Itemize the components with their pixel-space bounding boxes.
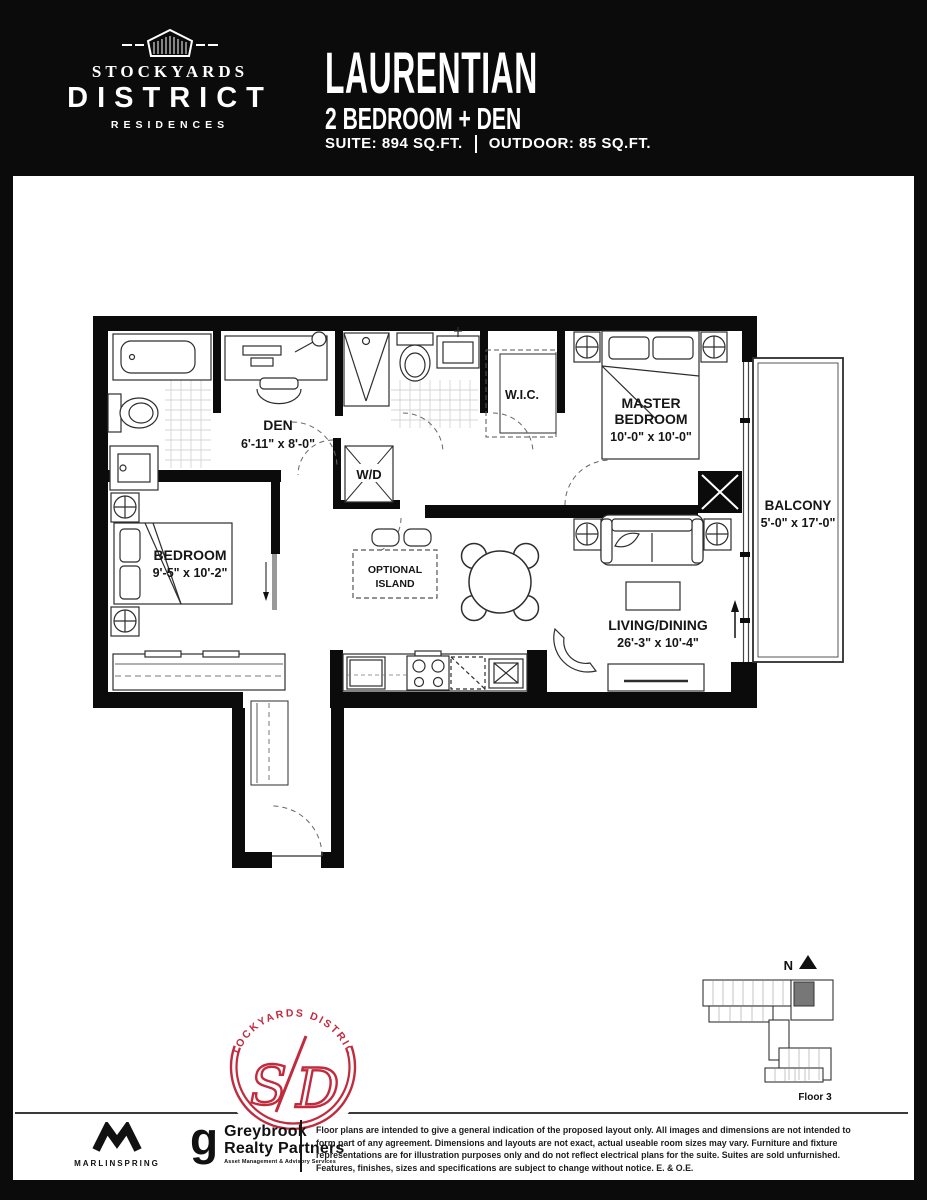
master-bedroom: MASTER BEDROOM 10'-0" x 10'-0"	[574, 331, 727, 459]
column	[698, 471, 742, 513]
den: DEN 6'-11" x 8'-0"	[225, 332, 327, 451]
footer-vertical-divider	[300, 1120, 302, 1172]
range-hood	[415, 651, 441, 656]
marlinspring-icon	[91, 1122, 143, 1152]
balcony-label: BALCONY	[765, 498, 832, 513]
lounge-chair	[554, 629, 596, 672]
burner	[432, 660, 444, 672]
stockyards-crown-icon	[120, 28, 220, 60]
living-dims: 26'-3" x 10'-4"	[617, 636, 699, 650]
burner	[413, 660, 425, 672]
floorplan-drawing: BALCONY 5'-0" x 17'-0" DEN 6'-11" x	[85, 300, 845, 880]
sofa-arm	[601, 519, 612, 563]
laundry-closet: W/D	[345, 446, 393, 502]
balcony: BALCONY 5'-0" x 17'-0"	[753, 358, 843, 662]
north-label: N	[784, 958, 793, 973]
footer-divider-line	[15, 1112, 908, 1114]
master-label-1: MASTER	[621, 395, 680, 411]
disclaimer-line-2: form part of any agreement. Dimensions a…	[316, 1137, 912, 1150]
building-key-plan: N Floor 3	[695, 952, 915, 1112]
tile-floor	[165, 380, 211, 468]
fridge-inner	[350, 660, 382, 686]
coffee-table	[626, 582, 680, 610]
toilet-seat	[129, 403, 153, 423]
brand-stockyards: STOCKYARDS	[70, 62, 270, 82]
pillow	[120, 566, 140, 599]
highlighted-unit	[794, 982, 814, 1006]
floor-label: Floor 3	[798, 1092, 832, 1103]
master-label-2: BEDROOM	[614, 411, 687, 427]
tv-console	[608, 664, 704, 691]
north-arrow-icon	[799, 955, 817, 969]
badge-letter-d: D	[295, 1057, 339, 1120]
bedroom-label: BEDROOM	[153, 547, 226, 563]
area-summary: SUITE: 894 SQ.FT.OUTDOOR: 85 SQ.FT.	[325, 135, 651, 153]
burner	[434, 678, 443, 687]
island-label-2: ISLAND	[375, 578, 415, 590]
pillow	[120, 529, 140, 562]
sink2-basin	[443, 342, 473, 363]
stove	[407, 656, 449, 690]
disclaimer-line-1: Floor plans are intended to give a gener…	[316, 1124, 912, 1137]
bedroom-closet	[113, 654, 285, 690]
badge-letter-s: S	[250, 1054, 287, 1117]
dining-set	[462, 544, 539, 621]
wd-label: W/D	[356, 467, 381, 482]
dining-table	[469, 551, 531, 613]
shower-drain	[363, 338, 370, 345]
desk-chair-seat	[260, 378, 298, 389]
bedroom: BEDROOM 9'-5" x 10'-2"	[111, 493, 285, 690]
island-label-1: OPTIONAL	[368, 564, 423, 576]
keyboard	[251, 358, 273, 366]
marlinspring-name: MARLINSPRING	[58, 1159, 176, 1168]
balcony-door-arrow	[731, 600, 739, 638]
living-label: LIVING/DINING	[608, 617, 708, 633]
disclaimer-text: Floor plans are intended to give a gener…	[316, 1124, 912, 1174]
lamp	[312, 332, 326, 346]
sofa-arm	[692, 519, 703, 563]
wic-label: W.I.C.	[505, 388, 539, 402]
bathroom-2	[344, 327, 479, 428]
outdoor-area: OUTDOOR: 85 SQ.FT.	[489, 135, 651, 152]
pillow	[609, 337, 649, 359]
burner	[415, 678, 424, 687]
closet-tab	[203, 651, 239, 657]
den-label: DEN	[263, 417, 293, 433]
optional-island: OPTIONAL ISLAND	[353, 529, 437, 598]
toilet2-seat	[405, 353, 425, 377]
brand-residences: RESIDENCES	[70, 119, 270, 131]
sofa-back	[612, 519, 692, 531]
tub-drain	[130, 355, 135, 360]
brand-district: DISTRICT	[60, 82, 280, 115]
slide-arrow	[263, 592, 269, 601]
stool	[404, 529, 431, 546]
bathroom-1	[108, 334, 211, 490]
disclaimer-line-3: representations are for illustration pur…	[316, 1149, 912, 1162]
pillow	[653, 337, 693, 359]
sliding-door	[272, 554, 277, 610]
toilet-tank	[108, 394, 121, 432]
disclaimer-line-4: Features, finishes, sizes and specificat…	[316, 1162, 912, 1175]
bedroom-dims: 9'-5" x 10'-2"	[153, 566, 228, 580]
floorplan-sheet: { "header": { "brand_line1": "STOCKYARDS…	[0, 0, 927, 1200]
page-title: LAURENTIAN	[325, 40, 538, 107]
stool	[372, 529, 399, 546]
monitor	[243, 346, 281, 355]
suite-area: SUITE: 894 SQ.FT.	[325, 135, 463, 152]
greybrook-g-icon: g	[190, 1120, 218, 1158]
den-dims: 6'-11" x 8'-0"	[241, 437, 315, 451]
foyer-closet	[251, 701, 288, 785]
marlinspring-logo: MARLINSPRING	[58, 1122, 176, 1168]
area-divider	[475, 135, 477, 153]
sink-drain	[120, 465, 126, 471]
tile-floor-2	[391, 380, 478, 428]
toilet2-tank	[397, 333, 433, 345]
living-room: LIVING/DINING 26'-3" x 10'-4"	[554, 515, 731, 691]
plan-subtitle: 2 BEDROOM + DEN	[325, 101, 521, 137]
balcony-dims: 5'-0" x 17'-0"	[761, 516, 836, 530]
kitchen	[343, 651, 527, 691]
desk-chair-back	[257, 389, 301, 404]
closet-tab	[145, 651, 181, 657]
master-dims: 10'-0" x 10'-0"	[610, 430, 692, 444]
